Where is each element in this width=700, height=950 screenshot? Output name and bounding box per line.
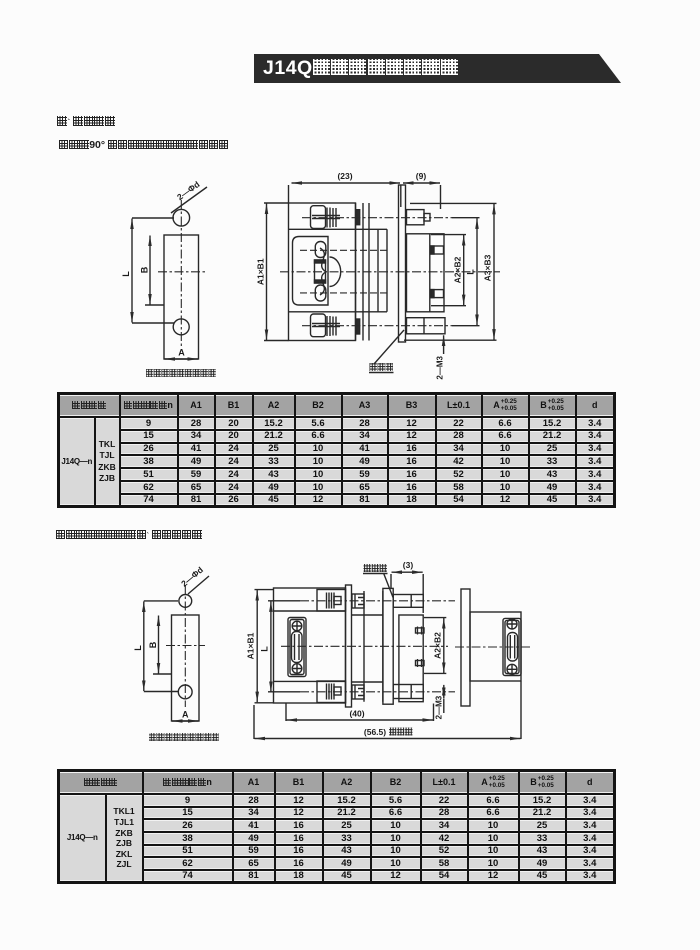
svg-text:L: L <box>466 269 476 275</box>
svg-text:(23): (23) <box>337 171 352 181</box>
svg-text:A2×B2: A2×B2 <box>452 256 462 283</box>
svg-text:(9): (9) <box>416 171 427 181</box>
svg-text:2—M3: 2—M3 <box>435 695 444 719</box>
svg-text:2—M3: 2—M3 <box>436 355 445 379</box>
svg-text:L: L <box>121 271 131 277</box>
svg-text:A3×B3: A3×B3 <box>483 254 493 281</box>
svg-text:A2×B2: A2×B2 <box>433 632 443 659</box>
svg-text:B: B <box>140 266 150 273</box>
svg-text:A: A <box>178 348 185 358</box>
svg-text:B: B <box>148 641 158 648</box>
svg-text:L: L <box>260 646 270 652</box>
svg-text:L: L <box>133 645 143 651</box>
svg-text:(40): (40) <box>349 709 364 719</box>
svg-text:A1×B1: A1×B1 <box>246 632 256 659</box>
svg-text:(56.5): (56.5) <box>364 727 386 737</box>
svg-text:A: A <box>182 710 189 720</box>
svg-text:2—Φd: 2—Φd <box>179 565 205 589</box>
svg-text:(3): (3) <box>403 560 414 570</box>
svg-text:2—Φd: 2—Φd <box>175 179 201 202</box>
svg-text:A1×B1: A1×B1 <box>256 258 266 285</box>
